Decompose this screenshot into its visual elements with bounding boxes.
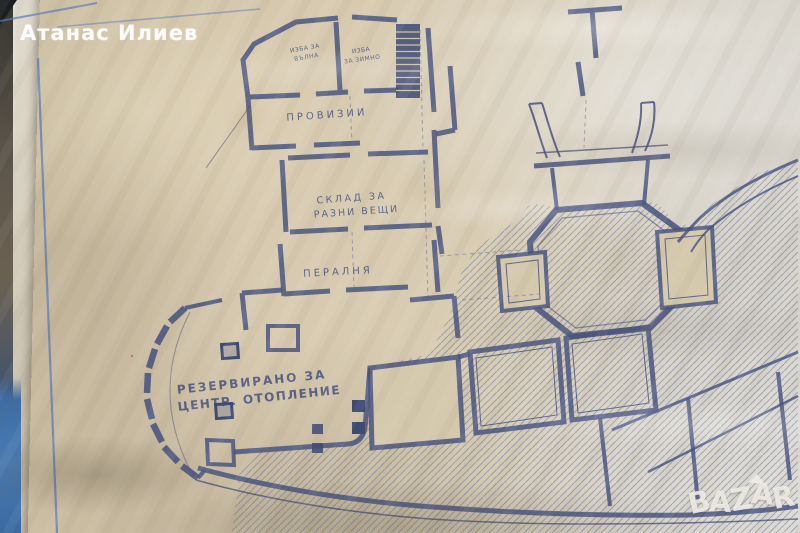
label-storage-b: РАЗНИ ВЕЩИ — [313, 204, 399, 221]
staircase — [396, 24, 420, 98]
logo-accent-icon — [748, 473, 765, 483]
photo-of-floor-plan: ИЗБА ЗА ВЪЛНА ИЗБА ЗА ЗИМНО ПРОВИЗИИ СКЛ… — [0, 0, 800, 533]
bazar-logo: BAZAR — [687, 478, 799, 520]
watermark-text: Атанас Илиев — [20, 21, 198, 45]
label-cellar2-b: ЗА ЗИМНО — [344, 53, 381, 65]
sheet-border-lines — [0, 3, 260, 533]
logo-letter: R — [769, 478, 796, 515]
label-cellar1-b: ВЪЛНА — [294, 52, 320, 63]
label-laundry: ПЕРАЛНЯ — [303, 265, 373, 280]
label-provisions: ПРОВИЗИИ — [286, 107, 368, 124]
label-cellar2: ИЗБА — [351, 46, 371, 56]
floor-plan-drawing: ИЗБА ЗА ВЪЛНА ИЗБА ЗА ЗИМНО ПРОВИЗИИ СКЛ… — [0, 0, 800, 533]
label-storage: СКЛАД ЗА — [316, 191, 387, 207]
